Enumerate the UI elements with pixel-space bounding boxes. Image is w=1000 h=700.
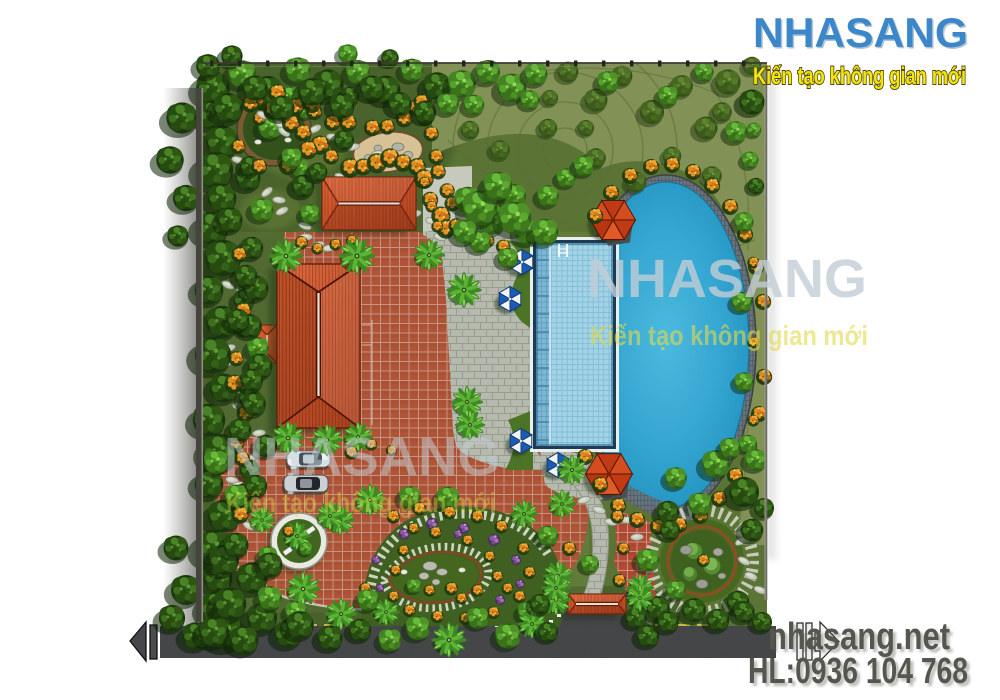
svg-text:Kiến tạo không gian mới: Kiến tạo không gian mới xyxy=(753,63,966,90)
svg-text:Kiến tạo không gian mới: Kiến tạo không gian mới xyxy=(590,320,868,351)
svg-text:NHASANG: NHASANG xyxy=(753,9,968,56)
svg-text:NHASANG: NHASANG xyxy=(224,427,500,487)
svg-text:HL:0936 104 768: HL:0936 104 768 xyxy=(748,650,968,691)
svg-text:Kiến tạo không gian mới: Kiến tạo không gian mới xyxy=(226,487,496,518)
svg-text:NHASANG: NHASANG xyxy=(587,249,867,309)
